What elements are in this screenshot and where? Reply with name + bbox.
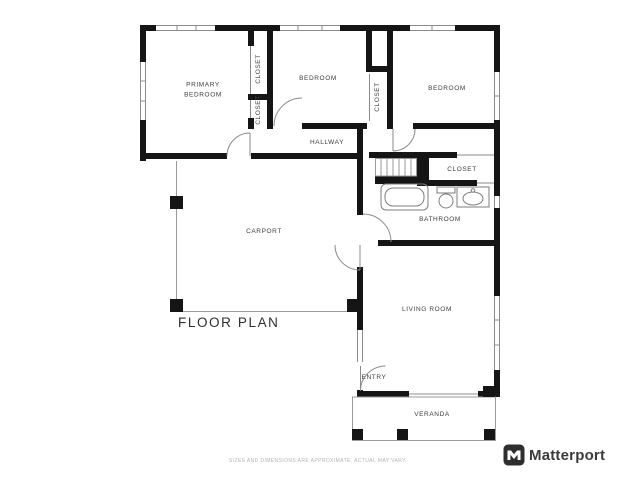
toilet — [437, 187, 455, 208]
bathroom-fixtures — [381, 184, 489, 210]
floor-plan-page: PRIMARY BEDROOM BEDROOM BEDROOM CLOSET C… — [0, 0, 640, 480]
room-label-closet-d: CLOSET — [447, 165, 477, 175]
bathtub — [381, 184, 428, 210]
matterport-logo: Matterport — [503, 444, 605, 466]
room-label-closet-a: CLOSET — [254, 54, 264, 84]
room-label-carport: CARPORT — [246, 227, 282, 237]
room-label-bedroom-center: BEDROOM — [299, 74, 337, 84]
room-label-bathroom: BATHROOM — [419, 215, 461, 225]
disclaimer-text: SIZES AND DIMENSIONS ARE APPROXIMATE, AC… — [229, 458, 407, 464]
page-title: FLOOR PLAN — [178, 315, 280, 330]
room-label-veranda: VERANDA — [414, 410, 450, 420]
room-label-bedroom-right: BEDROOM — [428, 84, 466, 94]
room-label-closet-c: CLOSET — [373, 82, 383, 112]
room-label-closet-b: CLOSET — [254, 95, 264, 125]
room-label-entry: ENTRY — [362, 373, 387, 383]
matterport-wordmark: Matterport — [529, 447, 605, 464]
room-label-living-room: LIVING ROOM — [402, 305, 452, 315]
stairs — [376, 159, 417, 177]
room-label-primary-bedroom: PRIMARY BEDROOM — [177, 81, 229, 102]
sink-vanity — [457, 187, 489, 207]
matterport-m-icon — [503, 444, 525, 466]
floor-plan-drawing — [0, 0, 640, 480]
room-label-hallway: HALLWAY — [310, 138, 344, 148]
